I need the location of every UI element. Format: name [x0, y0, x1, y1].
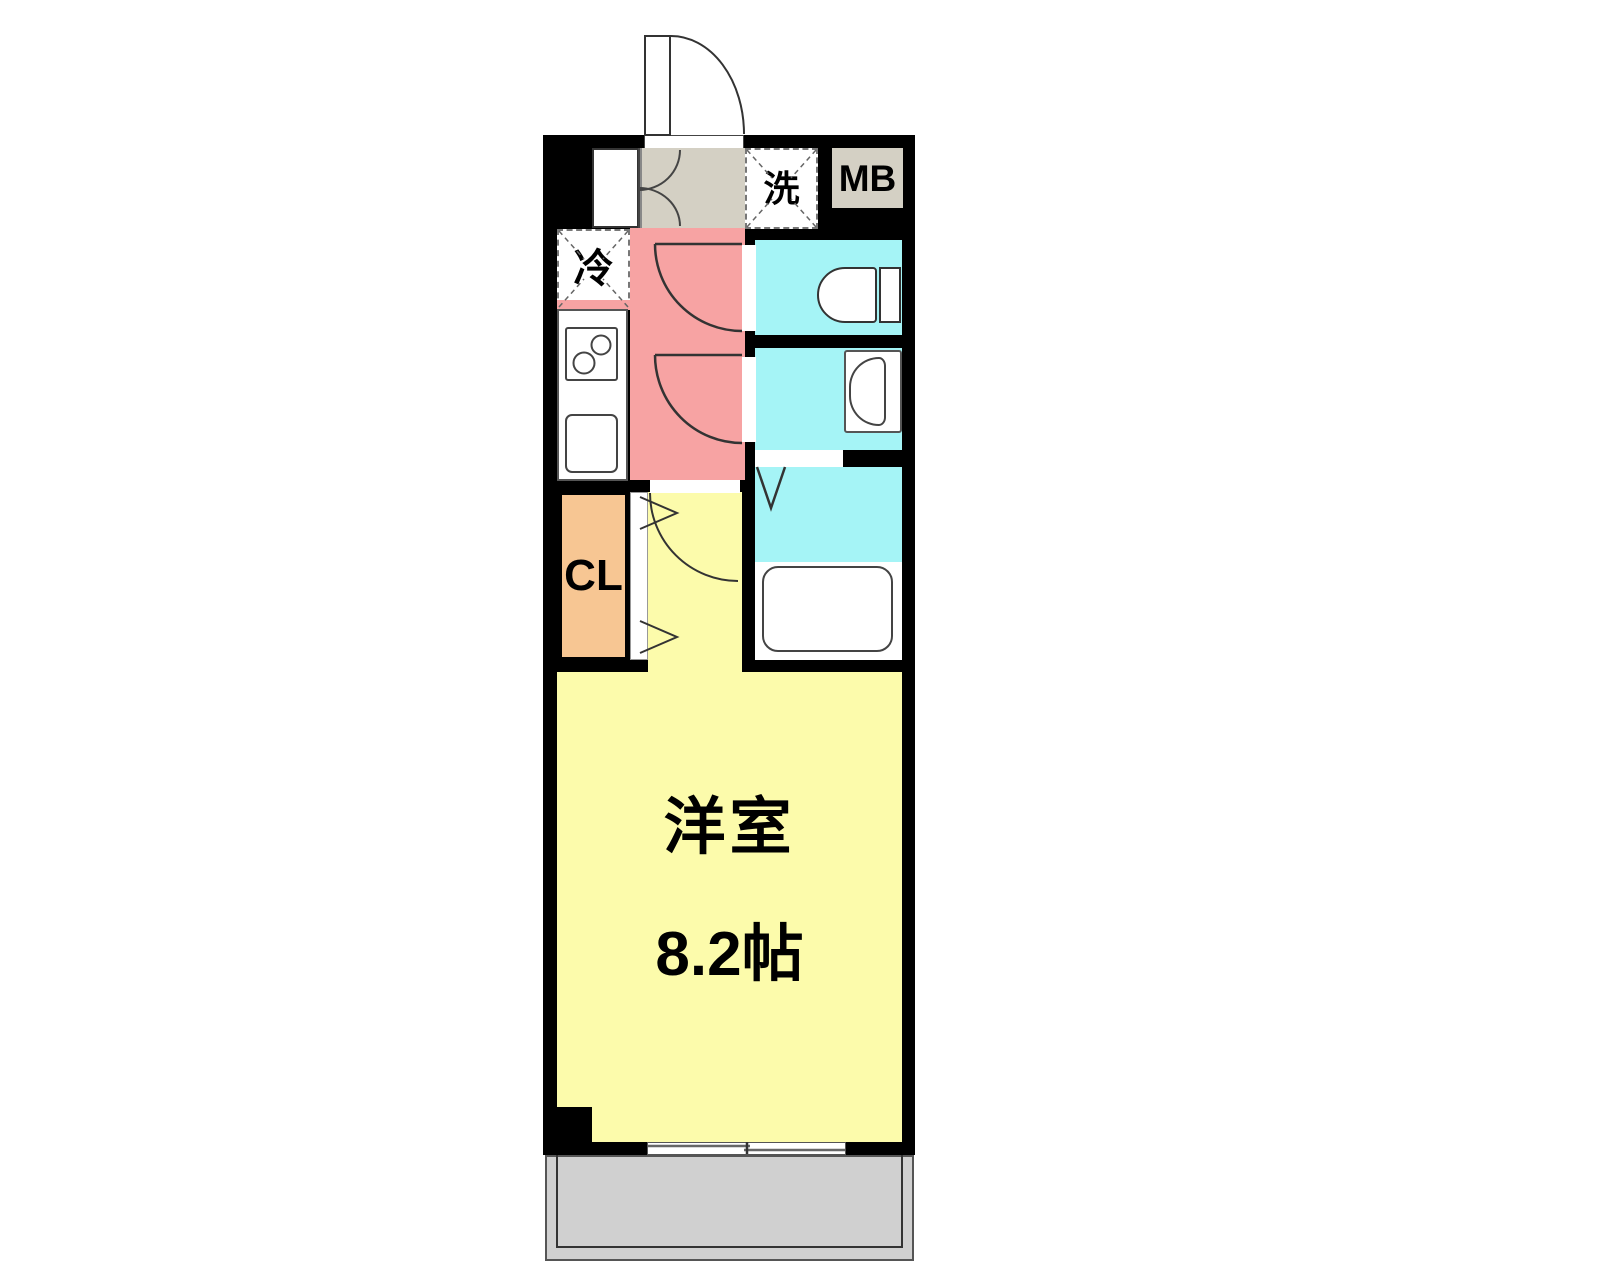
entry-door-leaf — [644, 35, 671, 136]
corridor — [648, 492, 742, 676]
shoe-cabinet — [592, 148, 639, 228]
balcony-window — [647, 1142, 846, 1155]
meter-box: MB — [832, 148, 903, 208]
entrance-area — [640, 148, 745, 228]
bathtub-symbol — [762, 566, 893, 652]
entry-door-opening — [644, 135, 744, 149]
refrigerator-label: 冷 — [557, 229, 630, 309]
floor-plan: MB CL 洋室 8.2帖 洗 冷 — [0, 0, 1600, 1280]
stove-symbol — [565, 327, 618, 381]
main-room — [557, 672, 902, 1142]
washroom-door-opening — [742, 357, 756, 442]
toilet-door-opening — [742, 245, 756, 331]
balcony-railing-line — [556, 1155, 903, 1248]
hall-kitchen — [630, 228, 745, 480]
toilet-tank-symbol — [879, 267, 901, 323]
entry-door-swing-icon — [671, 36, 744, 134]
closet: CL — [557, 490, 630, 662]
washer-label: 洗 — [745, 148, 818, 229]
bathroom-door-opening — [755, 450, 843, 467]
closet-door-strip — [630, 492, 648, 660]
wall-notch — [543, 1107, 592, 1155]
main-room-door-opening — [650, 480, 740, 493]
main-room-name-label: 洋室 — [557, 795, 902, 861]
bathroom — [755, 467, 902, 562]
main-room-size-label: 8.2帖 — [557, 922, 902, 988]
toilet-bowl-symbol — [817, 267, 877, 323]
kitchen-sink-symbol — [565, 414, 618, 473]
